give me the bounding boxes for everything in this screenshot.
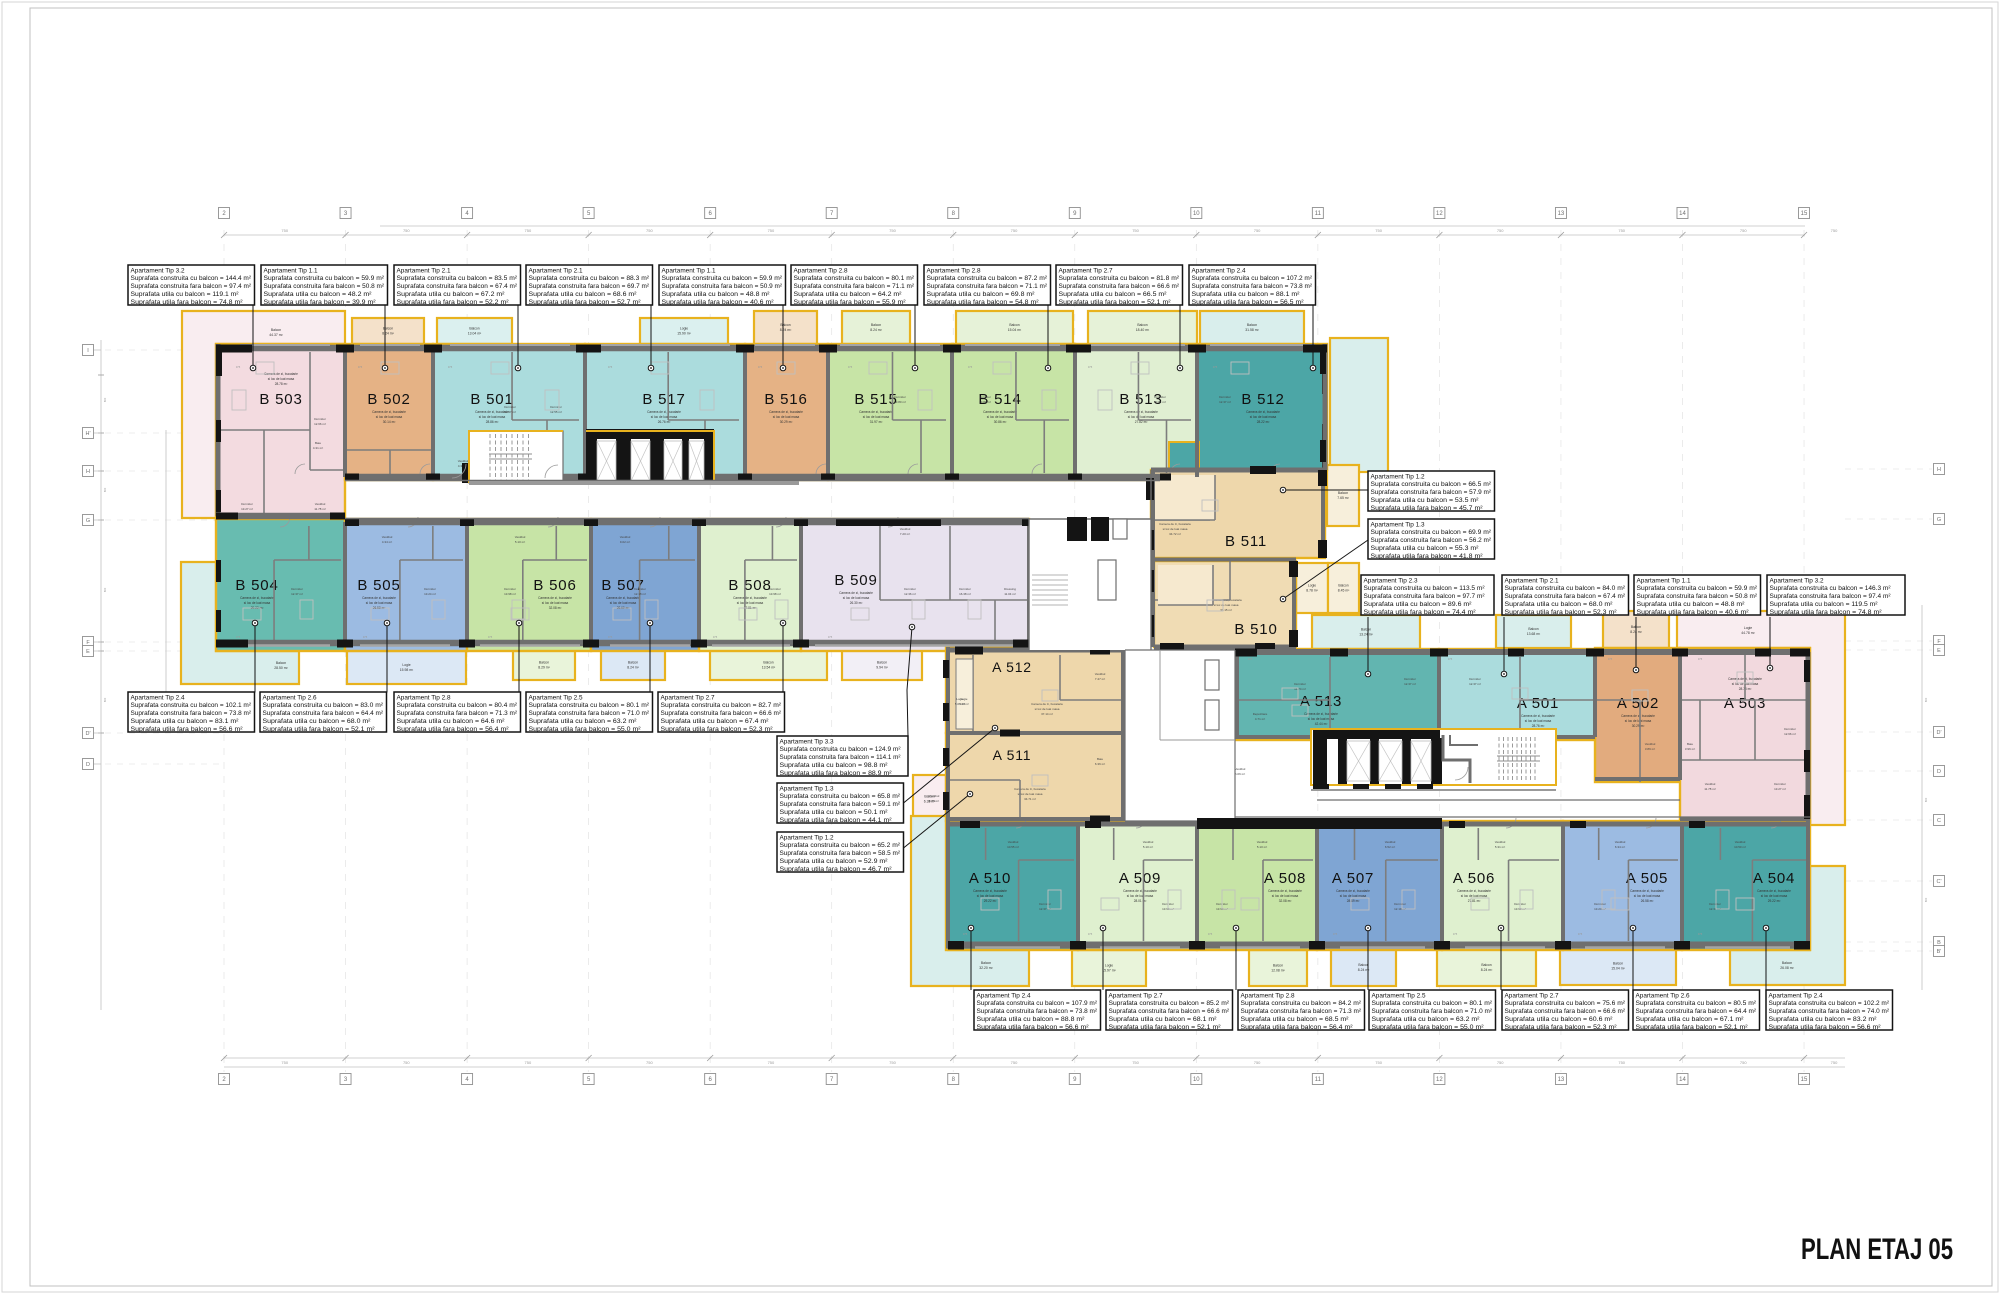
svg-text:12: 12 xyxy=(1436,211,1443,217)
svg-text:8.24 m²: 8.24 m² xyxy=(382,332,394,336)
svg-text:Camera de zi, bucatarie: Camera de zi, bucatarie xyxy=(1621,714,1655,718)
svg-text:B 508: B 508 xyxy=(728,577,771,594)
svg-text:Camera de zi, bucatarie: Camera de zi, bucatarie xyxy=(362,596,396,600)
svg-text:12.55 m²: 12.55 m² xyxy=(550,410,562,414)
svg-text:G: G xyxy=(1937,517,1941,523)
svg-text:si loc de luat masa: si loc de luat masa xyxy=(610,601,637,605)
svg-text:750: 750 xyxy=(1375,228,1382,233)
svg-text:Suprafata utila cu balcon = 11: Suprafata utila cu balcon = 119.1 m² xyxy=(131,291,239,298)
svg-text:11.78 m²: 11.78 m² xyxy=(1704,787,1716,791)
svg-text:Suprafata construita fara balc: Suprafata construita fara balcon = 50.8 … xyxy=(1637,593,1758,600)
svg-text:15.04 m²: 15.04 m² xyxy=(1008,328,1022,332)
svg-text:375: 375 xyxy=(1248,657,1253,661)
svg-text:Suprafata construita fara balc: Suprafata construita fara balcon = 97.4 … xyxy=(131,283,252,290)
svg-text:Baie: Baie xyxy=(315,441,321,445)
svg-text:Balcon: Balcon xyxy=(1137,323,1147,327)
svg-text:Vestibul: Vestibul xyxy=(382,535,393,539)
svg-text:Suprafata utila cu balcon = 67: Suprafata utila cu balcon = 67.1 m² xyxy=(1636,1016,1744,1023)
svg-text:13.80 m²: 13.80 m² xyxy=(979,400,991,404)
svg-text:si loc de luat masa: si loc de luat masa xyxy=(737,601,764,605)
svg-text:5.85 m²: 5.85 m² xyxy=(929,799,939,803)
svg-text:Balcon: Balcon xyxy=(1338,584,1348,588)
svg-text:13.54 m²: 13.54 m² xyxy=(762,666,776,670)
svg-text:12.81 m²: 12.81 m² xyxy=(1154,400,1166,404)
svg-text:Baie: Baie xyxy=(1097,757,1103,761)
svg-text:750: 750 xyxy=(1132,228,1139,233)
svg-text:Suprafata construita fara balc: Suprafata construita fara balcon = 71.3 … xyxy=(397,710,518,717)
svg-text:Apartament Tip 1.2: Apartament Tip 1.2 xyxy=(1371,473,1425,480)
svg-text:Suprafata utila fara balcon =: Suprafata utila fara balcon = 56.6 m² xyxy=(977,1024,1089,1031)
svg-text:A 507: A 507 xyxy=(1332,870,1374,887)
svg-text:Baie: Baie xyxy=(1687,742,1693,746)
svg-text:5.03 m²: 5.03 m² xyxy=(955,702,965,706)
svg-text:8.24 m²: 8.24 m² xyxy=(780,328,792,332)
svg-text:Suprafata construita cu balcon: Suprafata construita cu balcon = 102.2 m… xyxy=(1769,1000,1890,1007)
svg-text:8.24 m²: 8.24 m² xyxy=(1481,968,1493,972)
svg-text:31.97 m²: 31.97 m² xyxy=(870,420,883,424)
svg-text:Apartament Tip 2.6: Apartament Tip 2.6 xyxy=(1636,992,1690,999)
svg-text:Apartament Tip 2.6: Apartament Tip 2.6 xyxy=(263,694,317,701)
svg-text:Suprafata utila fara balcon =: Suprafata utila fara balcon = 56.4 m² xyxy=(1241,1024,1353,1031)
svg-text:Suprafata construita cu balcon: Suprafata construita cu balcon = 80.1 m² xyxy=(1372,1000,1493,1007)
svg-text:375: 375 xyxy=(1578,932,1583,936)
svg-text:375: 375 xyxy=(968,365,973,369)
svg-text:9.02 m²: 9.02 m² xyxy=(620,540,630,544)
svg-text:Camera de zi, bucatarie: Camera de zi, bucatarie xyxy=(1246,410,1280,414)
svg-text:Dormitor: Dormitor xyxy=(1469,677,1481,681)
svg-text:375: 375 xyxy=(828,635,833,639)
svg-text:H: H xyxy=(86,469,90,475)
svg-text:Apartament Tip 2.8: Apartament Tip 2.8 xyxy=(794,267,848,274)
svg-text:Vestibul: Vestibul xyxy=(458,459,469,463)
svg-text:Dormitor: Dormitor xyxy=(979,395,991,399)
svg-text:B 505: B 505 xyxy=(357,577,400,594)
svg-text:Dormitor: Dormitor xyxy=(291,587,303,591)
svg-text:si loc de luat masa: si loc de luat masa xyxy=(863,415,890,419)
svg-text:32.08 m²: 32.08 m² xyxy=(1279,899,1292,903)
svg-text:12.37 m²: 12.37 m² xyxy=(1404,682,1416,686)
svg-text:375: 375 xyxy=(1333,932,1338,936)
svg-text:750: 750 xyxy=(525,1060,532,1065)
svg-text:Suprafata construita fara balc: Suprafata construita fara balcon = 97.7 … xyxy=(1364,593,1485,600)
svg-text:H': H' xyxy=(85,431,90,437)
svg-text:si loc de luat masa: si loc de luat masa xyxy=(1340,894,1367,898)
svg-text:5.06 m²: 5.06 m² xyxy=(1235,772,1245,776)
svg-text:15.97 m²: 15.97 m² xyxy=(1102,969,1116,973)
svg-text:Dormitor: Dormitor xyxy=(241,502,253,506)
svg-text:27.81 m²: 27.81 m² xyxy=(1468,899,1481,903)
svg-text:Camera de zi, bucatarie: Camera de zi, bucatarie xyxy=(1268,889,1302,893)
svg-text:Dormitor: Dormitor xyxy=(424,587,436,591)
svg-text:Suprafata utila fara balcon =: Suprafata utila fara balcon = 74.4 m² xyxy=(1364,609,1476,616)
svg-text:Balcon: Balcon xyxy=(1361,628,1371,632)
svg-text:Vestibul: Vestibul xyxy=(515,535,526,539)
svg-text:Vestibul: Vestibul xyxy=(900,527,911,531)
svg-text:Apartament Tip 2.7: Apartament Tip 2.7 xyxy=(661,694,715,701)
svg-text:375: 375 xyxy=(236,365,241,369)
svg-text:10: 10 xyxy=(1193,1077,1200,1083)
svg-text:si loc de luat masa: si loc de luat masa xyxy=(1525,719,1552,723)
svg-text:750: 750 xyxy=(889,1060,896,1065)
svg-text:Camera de zi, bucatarie: Camera de zi, bucatarie xyxy=(1123,889,1157,893)
svg-text:Suprafata construita cu balcon: Suprafata construita cu balcon = 124.9 m… xyxy=(780,746,901,753)
svg-text:10: 10 xyxy=(1193,211,1200,217)
svg-text:750: 750 xyxy=(1132,1060,1139,1065)
svg-text:750: 750 xyxy=(1831,228,1838,233)
svg-text:Suprafata construita cu balcon: Suprafata construita cu balcon = 80.5 m² xyxy=(1636,1000,1757,1007)
svg-text:Vestibul: Vestibul xyxy=(1008,840,1019,844)
svg-text:Apartament Tip 2.8: Apartament Tip 2.8 xyxy=(927,267,981,274)
svg-text:Dormitor: Dormitor xyxy=(550,405,562,409)
svg-text:6.52 m²: 6.52 m² xyxy=(1385,845,1395,849)
svg-text:Suprafata utila cu balcon = 67: Suprafata utila cu balcon = 67.2 m² xyxy=(397,291,505,298)
svg-text:Balcon: Balcon xyxy=(276,661,286,665)
svg-text:12.18 m²: 12.18 m² xyxy=(634,592,646,596)
svg-text:Suprafata construita cu balcon: Suprafata construita cu balcon = 87.2 m² xyxy=(927,275,1048,282)
svg-text:375: 375 xyxy=(236,635,241,639)
svg-text:Camera de zi, bucatarie: Camera de zi, bucatarie xyxy=(538,596,572,600)
svg-text:A 513: A 513 xyxy=(1300,693,1342,710)
svg-text:800: 800 xyxy=(103,587,107,592)
svg-text:Balcon: Balcon xyxy=(1528,627,1538,631)
svg-text:13.24 m²: 13.24 m² xyxy=(1359,633,1373,637)
svg-text:si loc de luat masa: si loc de luat masa xyxy=(1214,603,1239,607)
svg-text:Suprafata utila cu balcon = 11: Suprafata utila cu balcon = 119.5 m² xyxy=(1770,601,1878,608)
svg-text:28.50 m²: 28.50 m² xyxy=(274,666,288,670)
svg-text:si loc de luat masa: si loc de luat masa xyxy=(1018,792,1043,796)
svg-text:Balcon: Balcon xyxy=(1338,491,1348,495)
svg-text:375: 375 xyxy=(363,635,368,639)
svg-text:13: 13 xyxy=(1558,1077,1565,1083)
svg-text:si loc de luat masa: si loc de luat masa xyxy=(1250,415,1277,419)
svg-text:Vestibul: Vestibul xyxy=(1385,840,1396,844)
svg-text:Suprafata utila cu balcon = 68: Suprafata utila cu balcon = 68.0 m² xyxy=(263,718,371,725)
svg-text:Suprafata construita cu balcon: Suprafata construita cu balcon = 80.1 m² xyxy=(529,702,650,709)
svg-text:Suprafata utila fara balcon =: Suprafata utila fara balcon = 52.1 m² xyxy=(1109,1024,1221,1031)
svg-text:Suprafata utila cu balcon = 48: Suprafata utila cu balcon = 48.2 m² xyxy=(264,291,372,298)
svg-text:Suprafata utila fara balcon =: Suprafata utila fara balcon = 56.5 m² xyxy=(1192,299,1304,306)
svg-text:Dormitor: Dormitor xyxy=(504,405,516,409)
svg-text:Suprafata utila fara balcon =: Suprafata utila fara balcon = 55.0 m² xyxy=(1372,1024,1484,1031)
svg-text:Suprafata construita cu balcon: Suprafata construita cu balcon = 81.8 m² xyxy=(1059,275,1180,282)
svg-text:Dormitor: Dormitor xyxy=(1154,395,1166,399)
svg-text:Apartament Tip 2.4: Apartament Tip 2.4 xyxy=(1192,267,1246,274)
svg-text:Suprafata utila fara balcon =: Suprafata utila fara balcon = 52.3 m² xyxy=(1505,609,1617,616)
svg-text:6.36 m²: 6.36 m² xyxy=(1095,762,1105,766)
svg-text:Balcon: Balcon xyxy=(1782,961,1792,965)
svg-text:750: 750 xyxy=(1831,1060,1838,1065)
svg-text:12.37 m²: 12.37 m² xyxy=(291,592,303,596)
svg-text:Dormitor: Dormitor xyxy=(1594,902,1606,906)
svg-text:Camera de zi, bucatarie: Camera de zi, bucatarie xyxy=(1757,889,1791,893)
svg-text:Suprafata construita cu balcon: Suprafata construita cu balcon = 102.1 m… xyxy=(131,702,252,709)
svg-text:Suprafata construita fara balc: Suprafata construita fara balcon = 67.4 … xyxy=(397,283,518,290)
svg-text:Vestibul: Vestibul xyxy=(620,535,631,539)
svg-text:Dormitor: Dormitor xyxy=(1039,902,1051,906)
svg-text:Suprafata construita fara balc: Suprafata construita fara balcon = 50.8 … xyxy=(264,283,385,290)
svg-text:8.29 m²: 8.29 m² xyxy=(538,666,550,670)
svg-text:Suprafata construita fara balc: Suprafata construita fara balcon = 71.3 … xyxy=(1241,1008,1362,1015)
svg-text:31.58 m²: 31.58 m² xyxy=(1245,328,1259,332)
svg-text:B 511: B 511 xyxy=(1225,533,1267,550)
svg-text:si loc de luat masa: si loc de luat masa xyxy=(843,596,870,600)
svg-text:Balcon: Balcon xyxy=(780,323,790,327)
svg-text:Suprafata construita fara balc: Suprafata construita fara balcon = 67.4 … xyxy=(1505,593,1626,600)
svg-text:Suprafata utila cu balcon = 63: Suprafata utila cu balcon = 63.2 m² xyxy=(1372,1016,1480,1023)
svg-text:Camera de zi, bucatarie: Camera de zi, bucatarie xyxy=(647,410,681,414)
svg-text:Suprafata construita fara balc: Suprafata construita fara balcon = 57.9 … xyxy=(1371,489,1492,496)
svg-text:Camera de zi, bucatarie: Camera de zi, bucatarie xyxy=(1336,889,1370,893)
svg-text:Suprafata utila fara balcon =: Suprafata utila fara balcon = 52.7 m² xyxy=(529,299,641,306)
svg-text:Suprafata construita cu balcon: Suprafata construita cu balcon = 88.3 m² xyxy=(529,275,650,282)
svg-text:B 510: B 510 xyxy=(1234,621,1277,638)
svg-text:Suprafata construita fara balc: Suprafata construita fara balcon = 71.1 … xyxy=(794,283,915,290)
svg-text:Dormitor: Dormitor xyxy=(904,587,916,591)
svg-text:750: 750 xyxy=(1011,228,1018,233)
svg-text:Suprafata construita cu balcon: Suprafata construita cu balcon = 59.9 m² xyxy=(662,275,783,282)
svg-text:13.27 m²: 13.27 m² xyxy=(1774,787,1786,791)
svg-text:Suprafata construita fara balc: Suprafata construita fara balcon = 66.6 … xyxy=(661,710,782,717)
svg-text:11.78 m²: 11.78 m² xyxy=(314,507,326,511)
svg-text:10.50 m²: 10.50 m² xyxy=(1734,845,1746,849)
svg-text:B 515: B 515 xyxy=(854,391,897,408)
svg-text:B 502: B 502 xyxy=(367,391,410,408)
svg-text:Balcon: Balcon xyxy=(1273,964,1283,968)
svg-text:Logie: Logie xyxy=(680,327,688,331)
svg-text:Camera de zi, bucatarie: Camera de zi, bucatarie xyxy=(1014,787,1046,791)
svg-text:Suprafata utila fara balcon =: Suprafata utila fara balcon = 74.8 m² xyxy=(131,299,243,306)
svg-text:Suprafata utila fara balcon =: Suprafata utila fara balcon = 56.6 m² xyxy=(1769,1024,1881,1031)
svg-text:12.37 m²: 12.37 m² xyxy=(1219,400,1231,404)
svg-text:800: 800 xyxy=(103,697,107,702)
svg-text:Camera de zi, bucatarie: Camera de zi, bucatarie xyxy=(372,410,406,414)
svg-text:8.78 m²: 8.78 m² xyxy=(1306,589,1318,593)
svg-text:26.30 m²: 26.30 m² xyxy=(850,601,863,605)
svg-text:Apartament Tip 1.3: Apartament Tip 1.3 xyxy=(1371,521,1425,528)
svg-text:Apartament Tip 1.2: Apartament Tip 1.2 xyxy=(780,834,834,841)
svg-text:750: 750 xyxy=(1254,228,1261,233)
svg-text:375: 375 xyxy=(1088,365,1093,369)
svg-text:13.80 m²: 13.80 m² xyxy=(894,400,906,404)
svg-text:Apartament Tip 2.5: Apartament Tip 2.5 xyxy=(529,694,583,701)
svg-text:5.10 m²: 5.10 m² xyxy=(1143,845,1153,849)
svg-text:Suprafata construita cu balcon: Suprafata construita cu balcon = 65.2 m² xyxy=(780,842,901,849)
svg-text:Suprafata utila cu balcon = 68: Suprafata utila cu balcon = 68.5 m² xyxy=(1241,1016,1349,1023)
svg-text:Suprafata construita cu balcon: Suprafata construita cu balcon = 83.5 m² xyxy=(397,275,518,282)
svg-text:375: 375 xyxy=(963,932,968,936)
svg-text:28.69 m²: 28.69 m² xyxy=(1347,899,1360,903)
svg-text:Suprafata construita fara balc: Suprafata construita fara balcon = 73.8 … xyxy=(1192,283,1313,290)
svg-text:Suprafata construita cu balcon: Suprafata construita cu balcon = 65.8 m² xyxy=(780,793,901,800)
svg-text:28.76 m²: 28.76 m² xyxy=(1532,724,1545,728)
svg-text:Suprafata utila cu balcon = 67: Suprafata utila cu balcon = 67.4 m² xyxy=(661,718,769,725)
svg-text:Dormitor: Dormitor xyxy=(504,587,516,591)
svg-text:Suprafata utila cu balcon = 83: Suprafata utila cu balcon = 83.1 m² xyxy=(131,718,239,725)
svg-text:B 517: B 517 xyxy=(642,391,685,408)
svg-text:si loc de luat masa: si loc de luat masa xyxy=(542,601,569,605)
svg-text:Dormitor: Dormitor xyxy=(1709,902,1721,906)
svg-text:11: 11 xyxy=(1315,1077,1322,1083)
svg-text:375: 375 xyxy=(1448,657,1453,661)
svg-text:E: E xyxy=(86,649,90,655)
svg-text:4.34 m²: 4.34 m² xyxy=(382,540,392,544)
svg-text:Camera de zi, bucatarie: Camera de zi, bucatarie xyxy=(733,596,767,600)
svg-text:Suprafata utila fara balcon =: Suprafata utila fara balcon = 45.7 m² xyxy=(1371,505,1483,512)
svg-text:Vestibul: Vestibul xyxy=(1645,742,1656,746)
svg-text:750: 750 xyxy=(1497,228,1504,233)
svg-text:Suprafata utila cu balcon = 64: Suprafata utila cu balcon = 64.2 m² xyxy=(794,291,902,298)
svg-text:13.04 m²: 13.04 m² xyxy=(468,332,482,336)
svg-text:Suprafata construita fara balc: Suprafata construita fara balcon = 56.2 … xyxy=(1371,537,1492,544)
svg-text:Apartament Tip 1.3: Apartament Tip 1.3 xyxy=(780,785,834,792)
svg-text:15: 15 xyxy=(1801,1077,1808,1083)
svg-text:D: D xyxy=(1937,769,1941,775)
svg-text:375: 375 xyxy=(1208,932,1213,936)
svg-text:Depozitare: Depozitare xyxy=(1253,712,1268,716)
svg-text:Dormitor: Dormitor xyxy=(894,395,906,399)
svg-text:Suprafata construita cu balcon: Suprafata construita cu balcon = 84.0 m² xyxy=(1505,585,1626,592)
svg-text:Suprafata construita cu balcon: Suprafata construita cu balcon = 80.1 m² xyxy=(794,275,915,282)
svg-text:Apartament Tip 2.7: Apartament Tip 2.7 xyxy=(1505,992,1559,999)
svg-text:si loc de luat masa: si loc de luat masa xyxy=(651,415,678,419)
svg-text:Suprafata construita cu balcon: Suprafata construita cu balcon = 59.9 m² xyxy=(264,275,385,282)
svg-text:Vestibul: Vestibul xyxy=(929,794,940,798)
svg-text:4.31 m²: 4.31 m² xyxy=(313,446,323,450)
svg-text:Suprafata utila fara balcon =: Suprafata utila fara balcon = 52.1 m² xyxy=(1059,299,1171,306)
svg-text:Suprafata construita fara balc: Suprafata construita fara balcon = 69.7 … xyxy=(529,283,650,290)
svg-text:Balcon: Balcon xyxy=(877,661,887,665)
svg-text:375: 375 xyxy=(1608,657,1613,661)
svg-text:16.38 m²: 16.38 m² xyxy=(959,592,971,596)
svg-text:4.71 m²: 4.71 m² xyxy=(1255,717,1265,721)
svg-text:D': D' xyxy=(1936,730,1941,736)
svg-text:6.34 m²: 6.34 m² xyxy=(1615,845,1625,849)
svg-text:375: 375 xyxy=(608,365,613,369)
svg-text:Suprafata utila fara balcon =: Suprafata utila fara balcon = 39.9 m² xyxy=(264,299,376,306)
svg-text:Logie: Logie xyxy=(402,663,410,667)
svg-text:Suprafata construita fara balc: Suprafata construita fara balcon = 74.0 … xyxy=(1769,1008,1890,1015)
svg-text:375: 375 xyxy=(488,635,493,639)
svg-text:34.72 m²: 34.72 m² xyxy=(1169,532,1181,536)
svg-text:Suprafata construita fara balc: Suprafata construita fara balcon = 66.6 … xyxy=(1059,283,1180,290)
svg-text:13.24 m²: 13.24 m² xyxy=(424,592,436,596)
svg-text:Suprafata construita fara balc: Suprafata construita fara balcon = 71.0 … xyxy=(1372,1008,1493,1015)
svg-text:Suprafata construita fara balc: Suprafata construita fara balcon = 50.9 … xyxy=(662,283,783,290)
svg-text:Apartament Tip 1.1: Apartament Tip 1.1 xyxy=(264,267,318,274)
svg-text:C: C xyxy=(1937,818,1941,824)
svg-text:Suprafata utila cu balcon = 60: Suprafata utila cu balcon = 60.6 m² xyxy=(1505,1016,1613,1023)
svg-text:375: 375 xyxy=(758,365,763,369)
svg-text:Suprafata utila cu balcon = 63: Suprafata utila cu balcon = 63.2 m² xyxy=(529,718,637,725)
svg-text:11: 11 xyxy=(1315,211,1322,217)
svg-text:Suprafata utila fara balcon =: Suprafata utila fara balcon = 56.4 m² xyxy=(397,726,509,733)
svg-text:Logie: Logie xyxy=(956,697,964,701)
svg-text:Apartament Tip 2.8: Apartament Tip 2.8 xyxy=(1241,992,1295,999)
svg-text:32.20 m²: 32.20 m² xyxy=(979,966,993,970)
svg-text:Dormitor: Dormitor xyxy=(1404,677,1416,681)
svg-text:5.10 m²: 5.10 m² xyxy=(515,540,525,544)
svg-text:Dormitor: Dormitor xyxy=(959,587,971,591)
svg-text:375: 375 xyxy=(608,635,613,639)
svg-text:Suprafata utila fara balcon =: Suprafata utila fara balcon = 55.9 m² xyxy=(794,299,906,306)
svg-text:Dormitor: Dormitor xyxy=(1774,782,1786,786)
svg-text:375: 375 xyxy=(848,365,853,369)
svg-text:750: 750 xyxy=(525,228,532,233)
svg-text:Dormitor: Dormitor xyxy=(1394,902,1406,906)
svg-text:Suprafata construita fara balc: Suprafata construita fara balcon = 64.4 … xyxy=(263,710,384,717)
svg-text:Suprafata utila fara balcon =: Suprafata utila fara balcon = 74.8 m² xyxy=(1770,609,1882,616)
svg-text:13: 13 xyxy=(1558,211,1565,217)
svg-text:Balcon: Balcon xyxy=(1358,963,1368,967)
svg-text:Suprafata construita cu balcon: Suprafata construita cu balcon = 80.4 m² xyxy=(397,702,518,709)
svg-text:B 503: B 503 xyxy=(259,391,302,408)
svg-text:Suprafata construita fara balc: Suprafata construita fara balcon = 58.5 … xyxy=(780,850,901,857)
svg-text:750: 750 xyxy=(281,1060,288,1065)
svg-text:Suprafata construita cu balcon: Suprafata construita cu balcon = 83.0 m² xyxy=(263,702,384,709)
svg-text:Apartament Tip 2.7: Apartament Tip 2.7 xyxy=(1059,267,1113,274)
svg-text:14: 14 xyxy=(1679,211,1686,217)
svg-text:Camera de zi, bucatarie: Camera de zi, bucatarie xyxy=(973,889,1007,893)
svg-text:750: 750 xyxy=(1011,1060,1018,1065)
svg-text:si loc de luat masa: si loc de luat masa xyxy=(1625,719,1652,723)
svg-text:28.22 m²: 28.22 m² xyxy=(1257,420,1270,424)
svg-text:Logie: Logie xyxy=(1744,626,1752,630)
svg-text:Suprafata construita cu balcon: Suprafata construita cu balcon = 107.2 m… xyxy=(1192,275,1313,282)
svg-text:Apartament Tip 3.3: Apartament Tip 3.3 xyxy=(780,738,834,745)
svg-text:Suprafata utila fara balcon =: Suprafata utila fara balcon = 52.2 m² xyxy=(397,299,509,306)
svg-text:Balcon: Balcon xyxy=(763,661,773,665)
svg-text:Balcon: Balcon xyxy=(871,323,881,327)
svg-text:29.22 m²: 29.22 m² xyxy=(984,899,997,903)
svg-text:30.29 m²: 30.29 m² xyxy=(1632,724,1645,728)
svg-text:si loc de luat masa: si loc de luat masa xyxy=(268,377,295,381)
svg-text:si loc de luat masa: si loc de luat masa xyxy=(1272,894,1299,898)
svg-text:Suprafata utila cu balcon = 89: Suprafata utila cu balcon = 89.6 m² xyxy=(1364,601,1472,608)
svg-text:5.10 m²: 5.10 m² xyxy=(1257,845,1267,849)
svg-text:Suprafata construita fara balc: Suprafata construita fara balcon = 97.4 … xyxy=(1770,593,1891,600)
svg-text:Suprafata construita fara balc: Suprafata construita fara balcon = 64.4 … xyxy=(1636,1008,1757,1015)
svg-text:Suprafata utila fara balcon =: Suprafata utila fara balcon = 52.1 m² xyxy=(1636,1024,1748,1031)
svg-text:Balcon: Balcon xyxy=(1613,962,1623,966)
svg-text:750: 750 xyxy=(646,228,653,233)
svg-text:Dormitor: Dormitor xyxy=(1784,727,1796,731)
svg-text:Balcon: Balcon xyxy=(628,661,638,665)
svg-text:3.96 m²: 3.96 m² xyxy=(1685,747,1695,751)
svg-text:B': B' xyxy=(1937,949,1942,955)
svg-text:Suprafata utila fara balcon =: Suprafata utila fara balcon = 88.9 m² xyxy=(780,770,892,777)
svg-text:Suprafata utila cu balcon = 88: Suprafata utila cu balcon = 88.8 m² xyxy=(977,1016,1085,1023)
svg-text:E: E xyxy=(1937,648,1941,654)
svg-text:Apartament Tip 2.5: Apartament Tip 2.5 xyxy=(1372,992,1426,999)
svg-text:B 512: B 512 xyxy=(1241,391,1284,408)
svg-text:750: 750 xyxy=(1375,1060,1382,1065)
svg-text:Suprafata construita cu balcon: Suprafata construita cu balcon = 66.5 m² xyxy=(1371,481,1492,488)
svg-text:Suprafata construita cu balcon: Suprafata construita cu balcon = 113.5 m… xyxy=(1364,585,1485,592)
svg-text:Vestibul: Vestibul xyxy=(1235,767,1246,771)
svg-text:Apartament Tip 2.7: Apartament Tip 2.7 xyxy=(1109,992,1163,999)
svg-text:A 509: A 509 xyxy=(1119,870,1161,887)
svg-text:Vestibul: Vestibul xyxy=(1095,672,1106,676)
svg-text:26.58 m²: 26.58 m² xyxy=(1641,899,1654,903)
svg-text:Suprafata utila fara balcon =: Suprafata utila fara balcon = 54.8 m² xyxy=(927,299,1039,306)
svg-text:Apartament Tip 2.1: Apartament Tip 2.1 xyxy=(1505,577,1559,584)
svg-text:Suprafata utila fara balcon =: Suprafata utila fara balcon = 40.6 m² xyxy=(1637,609,1749,616)
svg-text:Camera de zi, bucatarie: Camera de zi, bucatarie xyxy=(983,410,1017,414)
svg-text:8.24 m²: 8.24 m² xyxy=(627,666,639,670)
svg-text:750: 750 xyxy=(889,228,896,233)
svg-text:Balcon: Balcon xyxy=(539,661,549,665)
svg-text:34.71 m²: 34.71 m² xyxy=(1024,797,1036,801)
